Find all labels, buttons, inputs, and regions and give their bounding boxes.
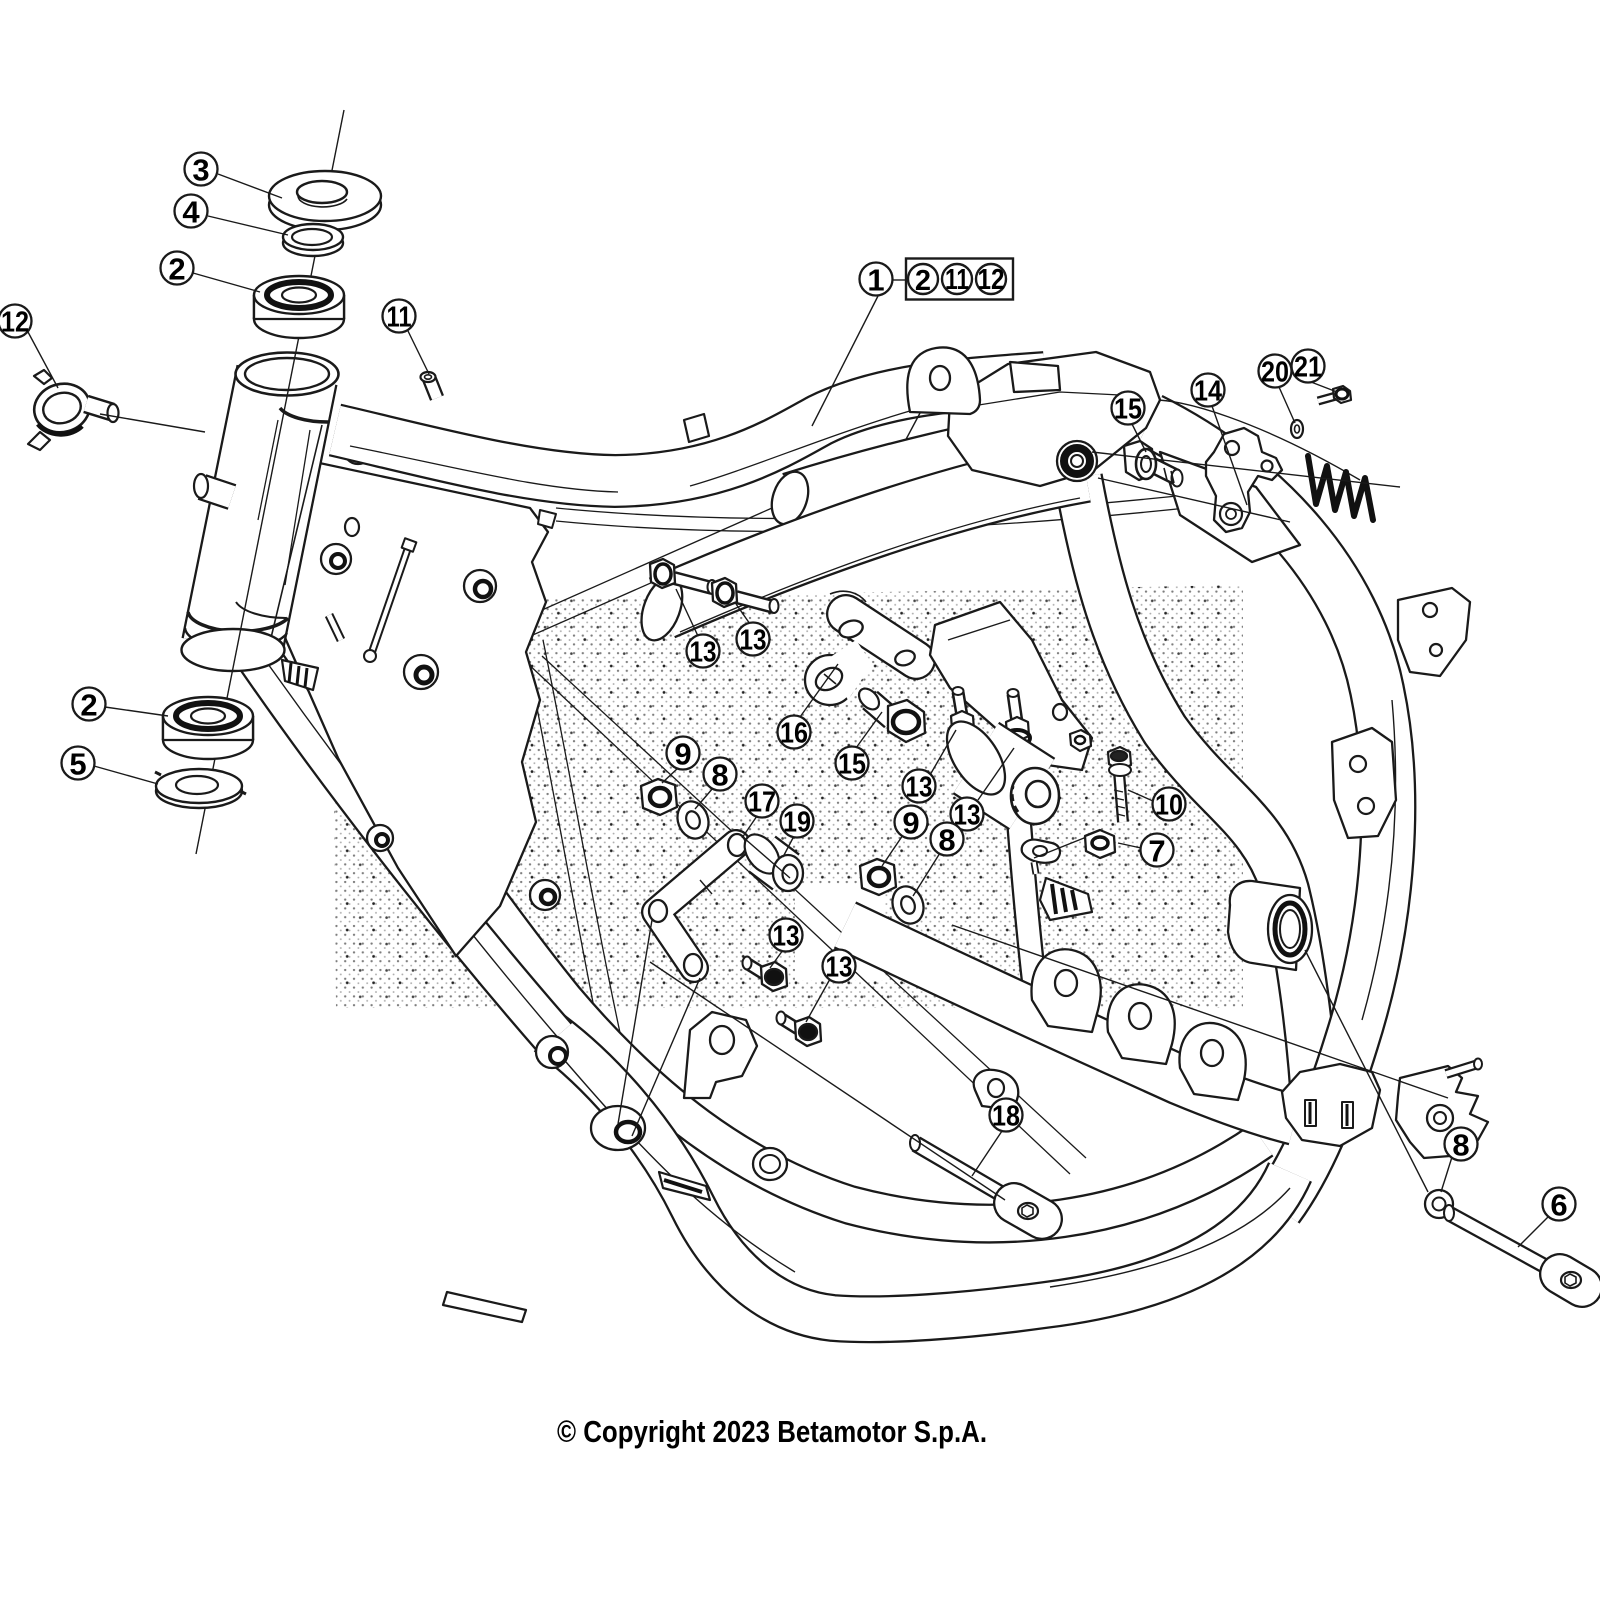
svg-text:8: 8 <box>1452 1128 1469 1163</box>
svg-text:19: 19 <box>783 807 811 839</box>
svg-text:7: 7 <box>1148 834 1165 869</box>
svg-text:9: 9 <box>674 737 691 772</box>
svg-text:8: 8 <box>938 823 955 858</box>
svg-text:14: 14 <box>1194 376 1222 408</box>
svg-text:21: 21 <box>1294 352 1322 384</box>
svg-text:2: 2 <box>915 265 931 297</box>
svg-text:18: 18 <box>992 1101 1020 1133</box>
svg-text:16: 16 <box>780 718 808 750</box>
svg-text:13: 13 <box>773 921 800 953</box>
svg-text:11: 11 <box>387 302 412 334</box>
svg-text:3: 3 <box>192 153 209 188</box>
svg-text:15: 15 <box>1114 394 1142 426</box>
svg-text:4: 4 <box>182 195 200 230</box>
svg-text:8: 8 <box>711 758 728 793</box>
svg-text:10: 10 <box>1155 790 1183 822</box>
svg-text:20: 20 <box>1261 357 1289 389</box>
svg-text:13: 13 <box>826 952 853 984</box>
svg-text:5: 5 <box>69 747 86 782</box>
svg-text:15: 15 <box>838 749 866 781</box>
svg-text:13: 13 <box>690 637 717 669</box>
svg-text:13: 13 <box>740 625 767 657</box>
svg-text:17: 17 <box>748 787 776 819</box>
svg-text:12: 12 <box>1 307 29 339</box>
svg-text:13: 13 <box>906 772 933 804</box>
svg-text:12: 12 <box>978 264 1005 296</box>
svg-text:1: 1 <box>867 263 884 298</box>
svg-text:© Copyright 2023 Betamotor S.p: © Copyright 2023 Betamotor S.p.A. <box>557 1414 987 1449</box>
svg-text:2: 2 <box>168 252 185 287</box>
svg-text:9: 9 <box>902 806 919 841</box>
svg-text:2: 2 <box>80 688 97 723</box>
svg-text:11: 11 <box>945 264 969 296</box>
svg-text:6: 6 <box>1550 1188 1567 1223</box>
